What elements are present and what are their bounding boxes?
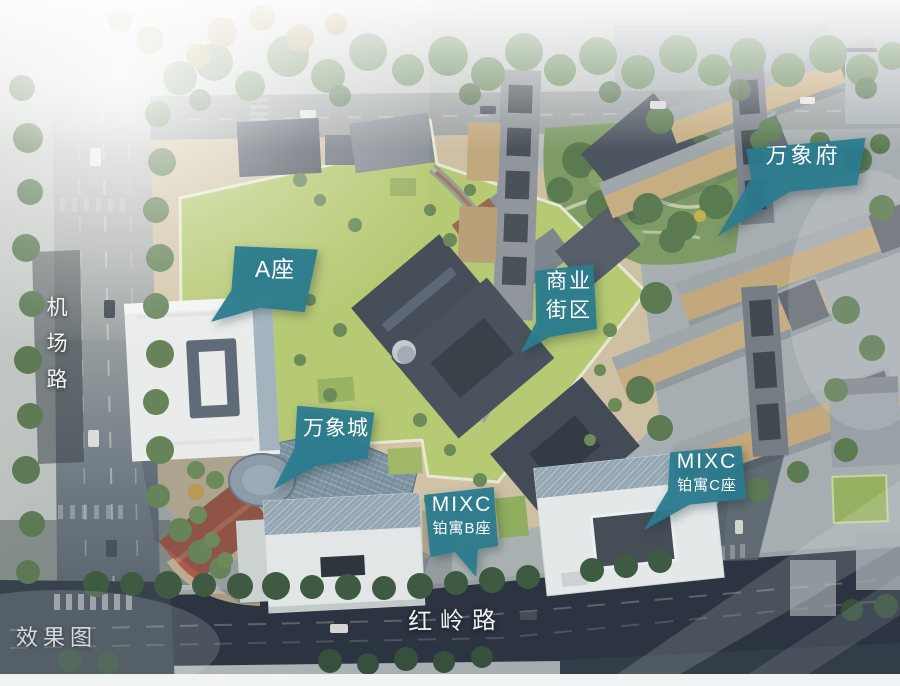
callout-shape: 商业 街区	[515, 258, 607, 358]
bottom-margin	[0, 674, 900, 686]
callout-commercial-street: 商业 街区	[515, 258, 607, 358]
callout-shape: 万象城	[268, 400, 380, 496]
callout-label-line1: MIXC	[422, 493, 502, 517]
callout-wanxiangfu: 万象府	[706, 130, 874, 242]
callout-label-line1: 商业	[535, 270, 603, 294]
callout-shape: MIXC 铂寓B座	[418, 482, 506, 582]
callout-label-line1: MIXC	[664, 450, 750, 474]
callout-label-line2: 铂寓C座	[664, 477, 750, 494]
watermark-render-note: 效果图	[16, 620, 97, 652]
callout-shape: MIXC 铂寓C座	[638, 440, 753, 535]
callout-label-line2: 街区	[535, 299, 603, 323]
callout-mixc-b: MIXC 铂寓B座	[418, 482, 506, 582]
callout-label-line2: 铂寓B座	[422, 520, 502, 537]
road-name-hongling: 红岭路	[408, 600, 505, 637]
callout-mixc-c: MIXC 铂寓C座	[638, 440, 753, 535]
aerial-render: 万象府 A座 商业 街区 万象城 MIXC 铂寓B座 MIXC 铂寓C座 机场路…	[0, 0, 900, 686]
road-name-jichang: 机场路	[40, 296, 70, 404]
callout-label: A座	[233, 256, 317, 282]
callout-wanxiangcheng: 万象城	[268, 400, 380, 496]
site-plan-graphic	[0, 0, 900, 686]
callout-shape: 万象府	[706, 130, 874, 242]
callout-label: 万象城	[296, 417, 376, 441]
callout-tower-a: A座	[205, 240, 325, 328]
callout-label: 万象府	[744, 143, 862, 168]
callout-shape: A座	[205, 240, 325, 328]
